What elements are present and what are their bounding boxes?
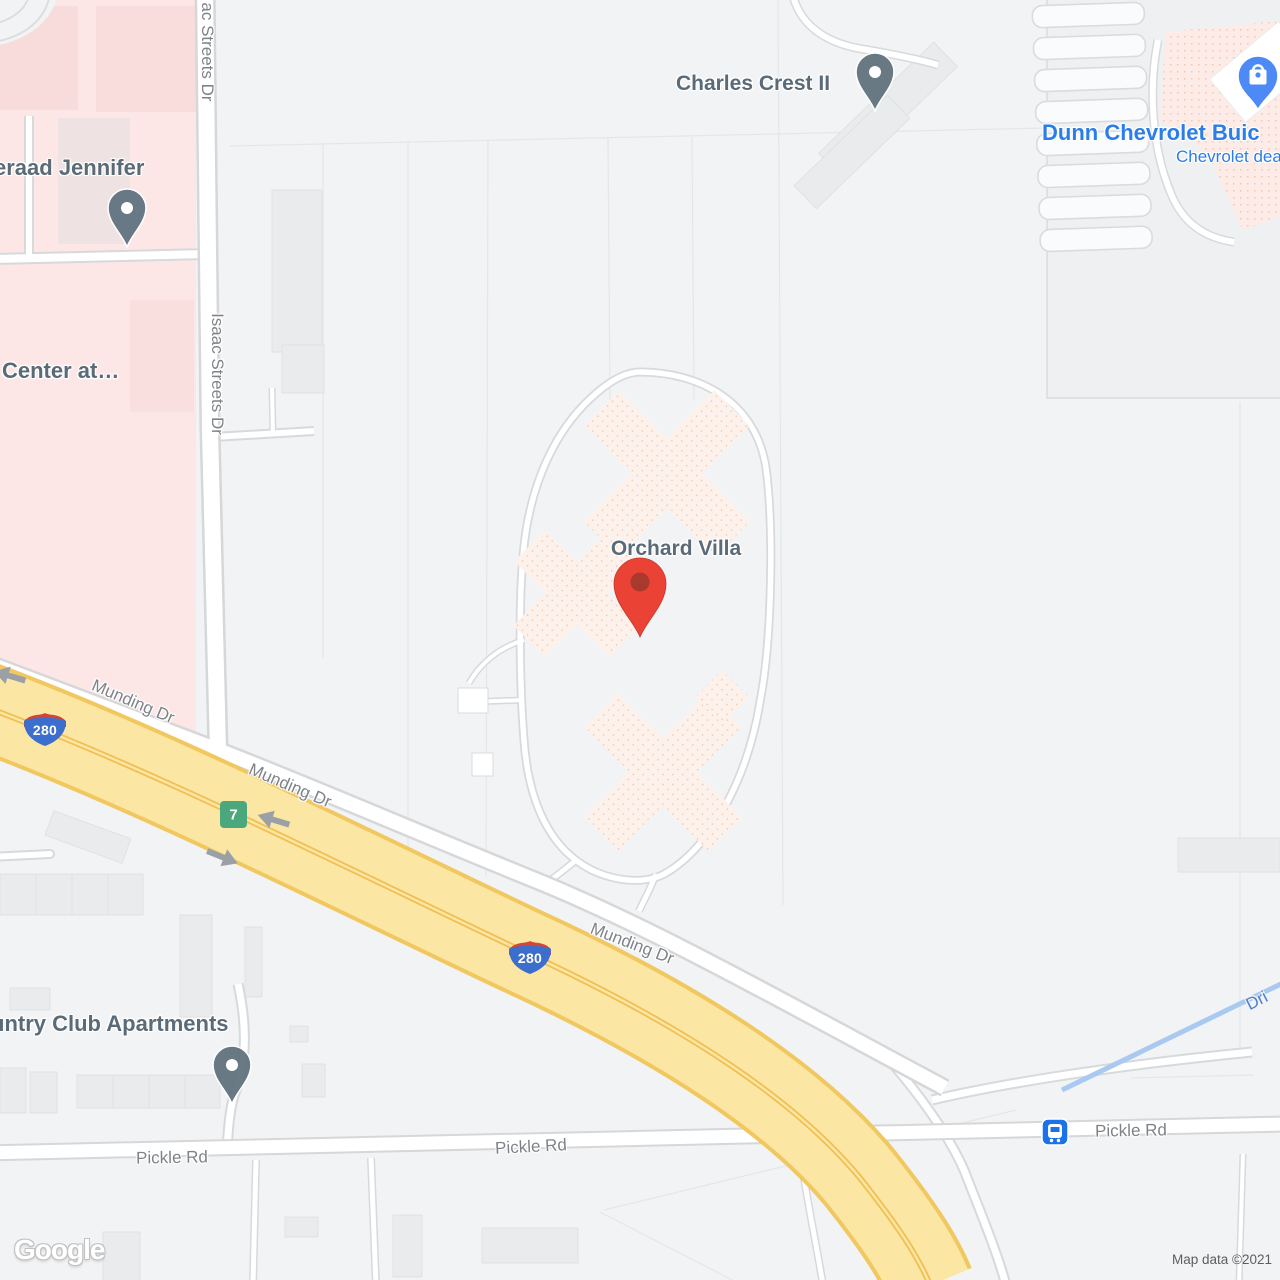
street-label-pickle-2: Pickle Rd (495, 1135, 568, 1159)
street-label-isaac-top: ac Streets Dr (197, 2, 217, 101)
poi-label-country-club[interactable]: untry Club Apartments (0, 1011, 229, 1037)
poi-label-orchard-villa[interactable]: Orchard Villa (611, 537, 741, 561)
poi-label-center-at[interactable]: Center at… (2, 358, 119, 384)
business-label-dunn-line1[interactable]: Dunn Chevrolet Buic (1042, 120, 1260, 146)
poi-label-jennifer[interactable]: eraad Jennifer (0, 155, 144, 181)
bus-station-icon[interactable] (1042, 1119, 1068, 1145)
poi-label-charles-crest[interactable]: Charles Crest II (676, 72, 830, 96)
google-logo[interactable]: Google (14, 1234, 104, 1266)
street-label-pickle-1: Pickle Rd (136, 1147, 208, 1168)
street-label-isaac-mid: Isaac Streets Dr (207, 313, 227, 435)
interstate-shield-280-a-number: 280 (33, 722, 57, 738)
map-canvas[interactable] (0, 0, 1280, 1280)
business-label-dunn-line2[interactable]: Chevrolet dea (1176, 147, 1280, 167)
exit-shield-7-number: 7 (229, 806, 237, 823)
map-attribution: Map data ©2021 (1172, 1252, 1272, 1267)
interstate-shield-280-b-number: 280 (518, 950, 542, 966)
street-label-pickle-3: Pickle Rd (1095, 1120, 1167, 1141)
map-viewport[interactable]: Charles Crest II Dunn Chevrolet Buic Che… (0, 0, 1280, 1280)
